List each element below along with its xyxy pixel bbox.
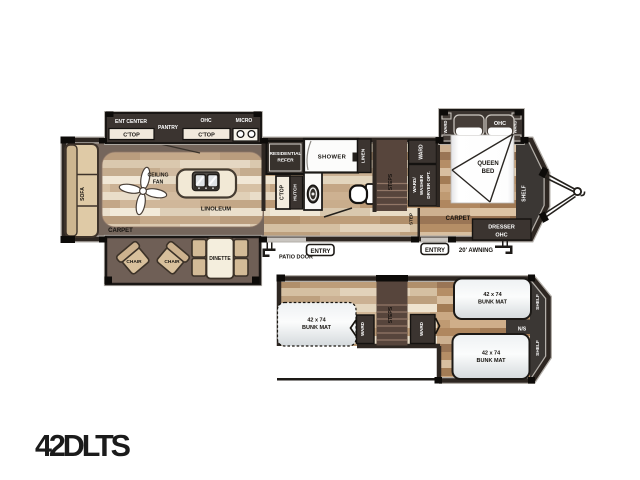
svg-text:WARD: WARD — [419, 144, 425, 160]
svg-text:WARD: WARD — [419, 321, 424, 336]
svg-text:SHELF: SHELF — [535, 294, 541, 310]
svg-text:WASHER: WASHER — [419, 174, 424, 195]
svg-text:SHELF: SHELF — [522, 185, 528, 201]
svg-text:ENTRY: ENTRY — [425, 248, 445, 254]
svg-text:OHC: OHC — [494, 121, 506, 127]
svg-text:RESIDENTIAL: RESIDENTIAL — [270, 151, 302, 157]
svg-text:CEILING: CEILING — [147, 173, 168, 179]
svg-text:STEPS: STEPS — [388, 173, 394, 190]
svg-text:STEPS: STEPS — [388, 306, 394, 323]
svg-text:QUEEN: QUEEN — [477, 161, 498, 167]
svg-text:LINEN: LINEN — [361, 148, 367, 163]
svg-text:SOFA: SOFA — [80, 187, 86, 201]
svg-text:WARD/: WARD/ — [412, 177, 417, 193]
svg-text:REFER: REFER — [277, 158, 294, 164]
svg-text:20' AWNING: 20' AWNING — [459, 248, 494, 254]
svg-text:42 x 74: 42 x 74 — [483, 292, 502, 298]
svg-text:WARD: WARD — [360, 321, 365, 336]
svg-text:BED: BED — [482, 169, 495, 175]
svg-text:42 x 74: 42 x 74 — [307, 318, 326, 324]
svg-text:STEP: STEP — [409, 213, 414, 225]
svg-text:BUNK MAT: BUNK MAT — [302, 325, 332, 331]
svg-text:C'TOP: C'TOP — [198, 133, 215, 139]
svg-text:MICRO: MICRO — [236, 118, 253, 124]
svg-text:ENT CENTER: ENT CENTER — [115, 119, 147, 125]
svg-text:DRYER OPT.: DRYER OPT. — [426, 171, 431, 198]
svg-text:FAN: FAN — [153, 180, 164, 186]
svg-text:BUNK MAT: BUNK MAT — [478, 300, 508, 306]
svg-text:OHC: OHC — [495, 233, 507, 239]
svg-text:DINETTE: DINETTE — [209, 256, 231, 262]
svg-text:C'TOP: C'TOP — [280, 184, 286, 200]
svg-text:ENTRY: ENTRY — [310, 249, 330, 255]
svg-text:42 x 74: 42 x 74 — [482, 351, 501, 357]
svg-text:CHAIR: CHAIR — [126, 259, 142, 265]
svg-text:SHOWER: SHOWER — [318, 155, 347, 161]
svg-text:HUTCH: HUTCH — [293, 184, 299, 201]
svg-text:SHELF: SHELF — [535, 340, 541, 356]
svg-text:LINOLEUM: LINOLEUM — [201, 207, 231, 213]
svg-text:OHC: OHC — [200, 118, 212, 124]
svg-text:CARPET: CARPET — [108, 228, 133, 234]
svg-text:PANTRY: PANTRY — [158, 125, 179, 131]
svg-text:N/S: N/S — [518, 327, 527, 333]
svg-text:BUNK MAT: BUNK MAT — [477, 358, 507, 364]
svg-text:DRESSER: DRESSER — [488, 225, 515, 231]
svg-text:CHAIR: CHAIR — [164, 259, 180, 265]
svg-text:C'TOP: C'TOP — [123, 133, 140, 139]
svg-text:WARD: WARD — [443, 121, 448, 134]
svg-text:42DLTS: 42DLTS — [35, 429, 131, 463]
svg-text:CARPET: CARPET — [446, 216, 471, 222]
